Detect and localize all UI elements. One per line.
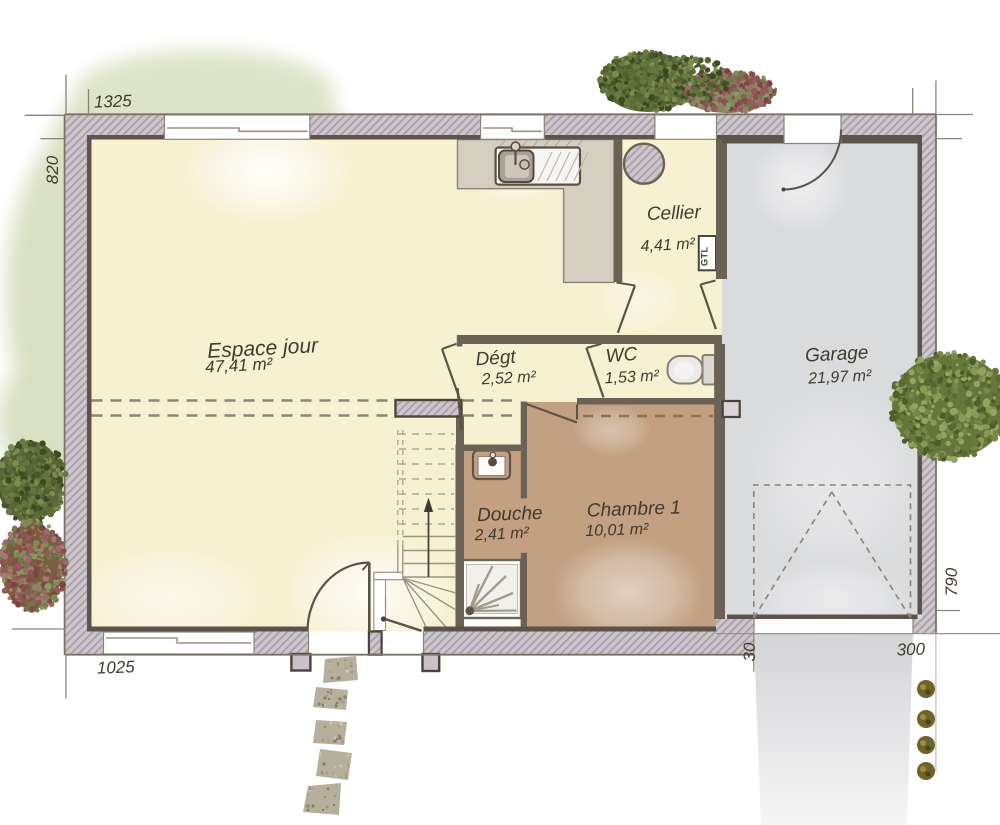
svg-text:Douche: Douche: [477, 503, 543, 526]
svg-text:4,41 m²: 4,41 m²: [640, 236, 696, 256]
svg-text:1,53 m²: 1,53 m²: [604, 368, 660, 388]
svg-text:2,41 m²: 2,41 m²: [473, 525, 530, 545]
svg-text:300: 300: [896, 639, 926, 659]
svg-text:1025: 1025: [97, 657, 136, 677]
svg-text:WC: WC: [605, 344, 639, 368]
svg-text:Chambre 1: Chambre 1: [586, 497, 681, 521]
svg-text:21,97 m²: 21,97 m²: [807, 367, 873, 387]
svg-text:Cellier: Cellier: [647, 202, 702, 225]
svg-text:47,41 m²: 47,41 m²: [205, 354, 274, 377]
svg-text:820: 820: [43, 155, 62, 184]
svg-text:GTL: GTL: [699, 246, 709, 266]
svg-text:10,01 m²: 10,01 m²: [585, 521, 649, 540]
svg-text:2,52 m²: 2,52 m²: [480, 369, 537, 389]
svg-text:Dégt: Dégt: [475, 347, 517, 371]
svg-text:790: 790: [942, 567, 961, 596]
svg-text:Garage: Garage: [805, 342, 869, 366]
svg-text:1325: 1325: [94, 91, 133, 111]
svg-text:30: 30: [740, 642, 759, 661]
